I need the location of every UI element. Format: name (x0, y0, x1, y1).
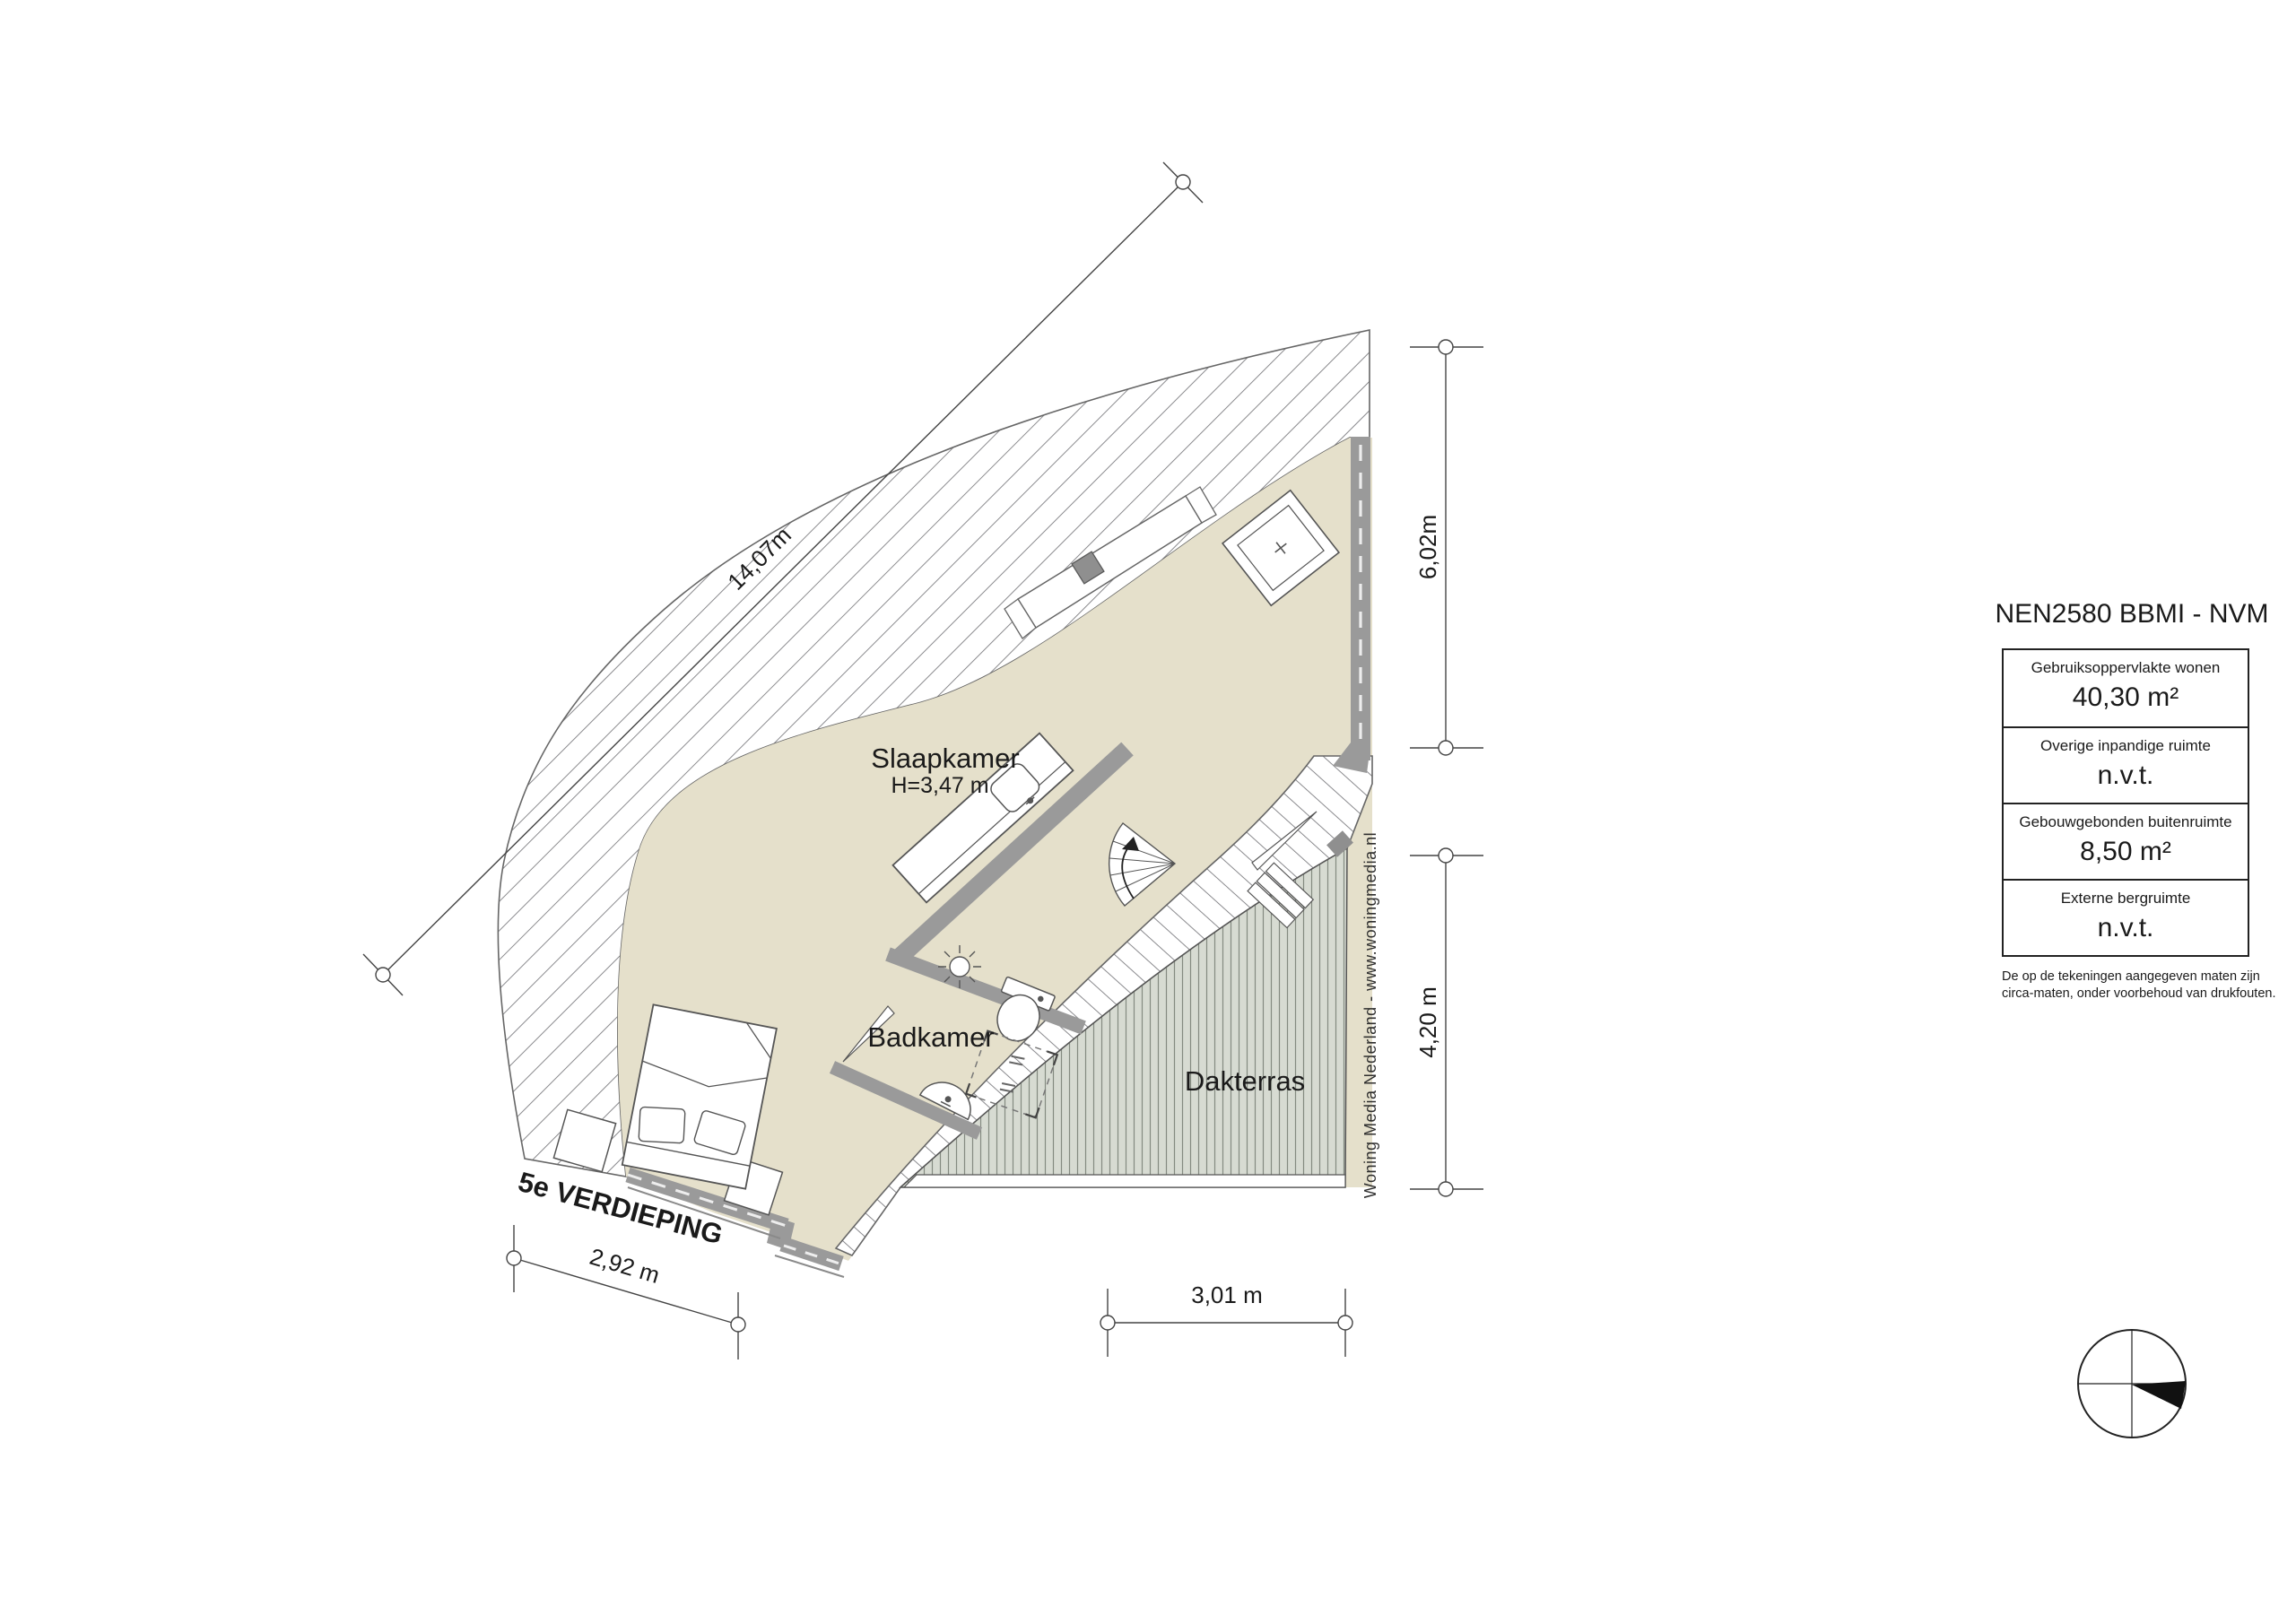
table-row: Gebouwgebonden buitenruimte 8,50 m² (2004, 803, 2248, 879)
nen2580-table: Gebruiksoppervlakte wonen 40,30 m² Overi… (2002, 648, 2249, 957)
dim-bottom-left-label: 2,92 m (587, 1243, 663, 1289)
table-row: Overige inpandige ruimte n.v.t. (2004, 726, 2248, 803)
dim-right-upper-label: 6,02m (1414, 515, 1441, 579)
credit-text: Woning Media Nederland - www.woningmedia… (1361, 832, 1379, 1198)
floorplan-page: Slaapkamer H=3,47 m Badkamer Dakterras 1… (0, 0, 2296, 1607)
nen2580-title: NEN2580 BBMI - NVM (1984, 599, 2280, 630)
row-value: n.v.t. (2004, 908, 2248, 943)
table-row: Externe bergruimte n.v.t. (2004, 879, 2248, 955)
row-value: 40,30 m² (2004, 677, 2248, 713)
nen2580-footnote: De op de tekeningen aangegeven maten zij… (2002, 969, 2280, 1003)
bedroom-height-note: H=3,47 m (891, 773, 988, 798)
table-row: Gebruiksoppervlakte wonen 40,30 m² (2004, 650, 2248, 726)
bedroom-label: Slaapkamer (871, 743, 1019, 774)
terrace-edge-band (904, 1175, 1345, 1187)
row-value: n.v.t. (2004, 755, 2248, 791)
compass-icon (2078, 1330, 2186, 1438)
row-label: Externe bergruimte (2004, 881, 2248, 908)
row-label: Gebruiksoppervlakte wonen (2004, 650, 2248, 677)
row-label: Overige inpandige ruimte (2004, 728, 2248, 755)
ceiling-light-icon (938, 945, 981, 988)
row-value: 8,50 m² (2004, 831, 2248, 867)
floor-plan-drawing: Slaapkamer H=3,47 m Badkamer Dakterras 1… (0, 0, 2296, 1607)
dim-right-lower-label: 4,20 m (1414, 986, 1441, 1058)
footnote-line: circa-maten, onder voorbehoud van drukfo… (2002, 986, 2280, 1003)
bathroom-label: Badkamer (867, 1021, 994, 1053)
terrace-label: Dakterras (1185, 1065, 1305, 1097)
footnote-line: De op de tekeningen aangegeven maten zij… (2002, 969, 2280, 986)
dim-bottom-center-label: 3,01 m (1191, 1281, 1263, 1308)
row-label: Gebouwgebonden buitenruimte (2004, 804, 2248, 831)
